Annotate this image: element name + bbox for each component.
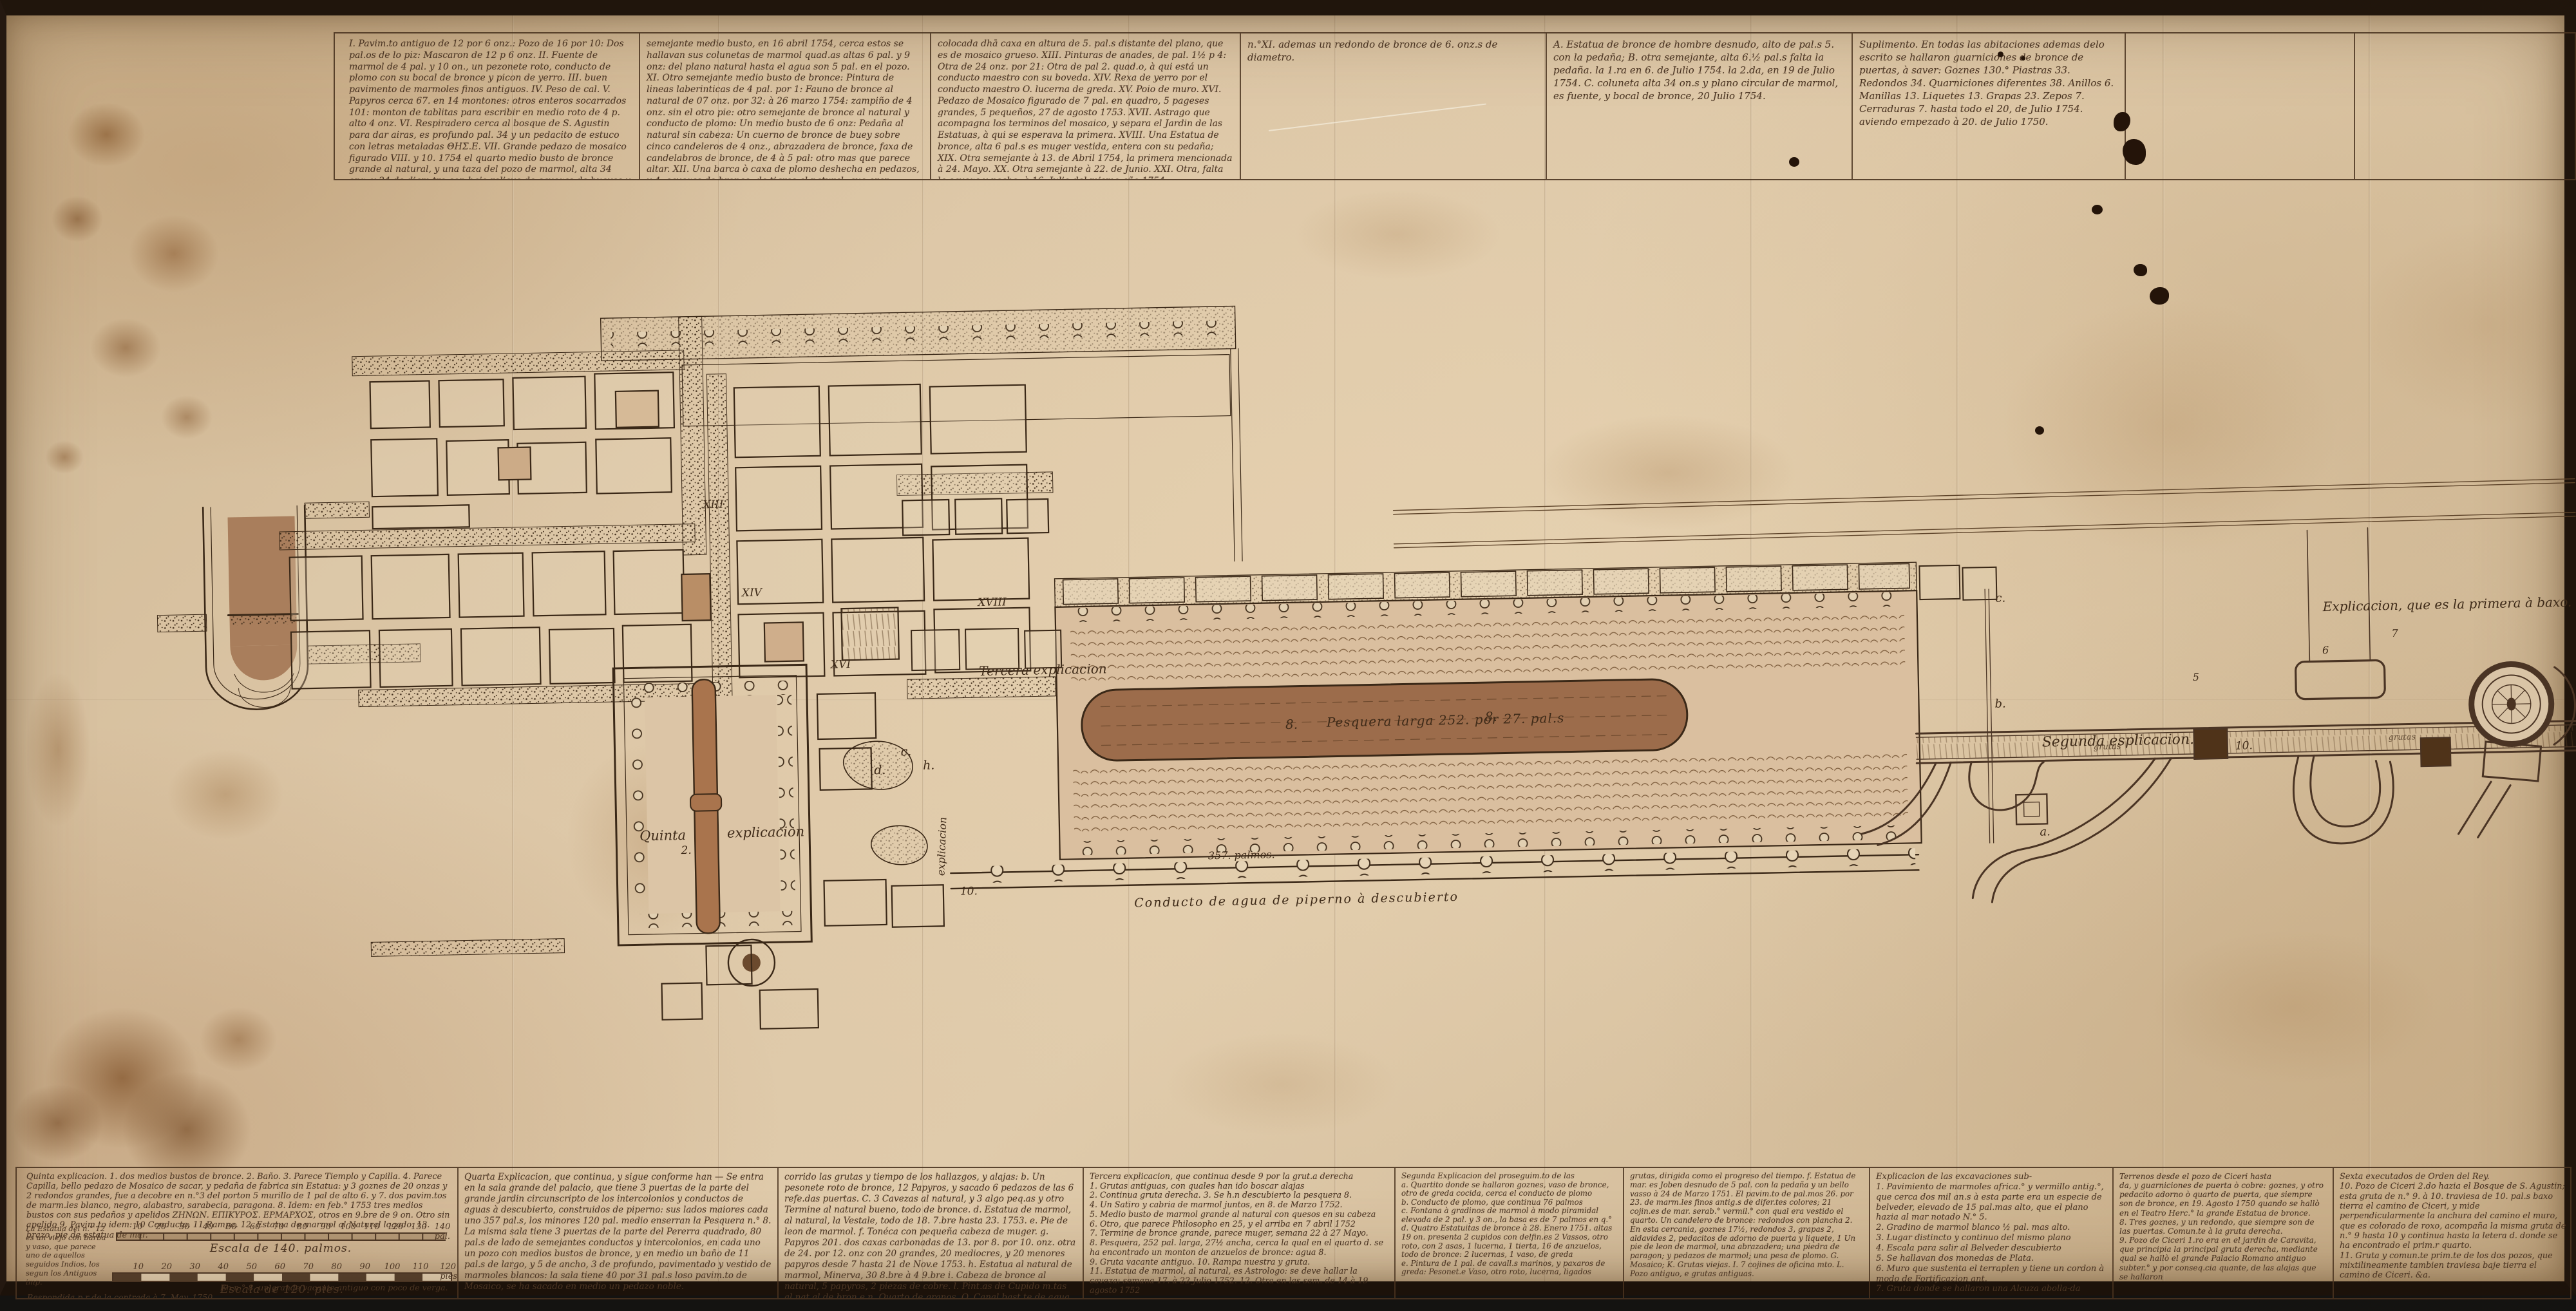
primera-label: Explicacion, que es la primera à baxo. 1…: [2322, 594, 2576, 614]
top-text-column-3: colocada dhā caxa en altura de 5. pal.s …: [931, 33, 1241, 179]
pesquera-num-right: 8.: [1485, 709, 1498, 724]
bottom-column-segunda-2: grutas, dirigida como el progreso del ti…: [1624, 1168, 1870, 1298]
top-text-2: semejante medio busto, en 16 abril 1754,…: [647, 39, 923, 179]
quinta-label-right: explicacion: [727, 824, 805, 840]
letter-a: a.: [2040, 825, 2050, 838]
bottom-column-terrenos: Terrenos desde el pozo de Ciceri hasta d…: [2114, 1168, 2334, 1298]
quinta-label-left: Quinta: [639, 827, 686, 844]
top-text-abc: A. Estatua de bronce de hombre desnudo, …: [1553, 39, 1845, 103]
quinta-footer-2: En n.° 8. un grande vacante antiguo con …: [220, 1283, 448, 1292]
vertical-explicacion: explicacion: [934, 816, 949, 876]
bottom-column-quarta-2: corrido las grutas y tiempo de los halla…: [779, 1168, 1084, 1298]
top-text-3: colocada dhā caxa en altura de 5. pal.s …: [938, 39, 1233, 179]
label-10: 10.: [960, 885, 978, 898]
segunda-text-1: Segunda Explicacion del proseguim.to de …: [1401, 1172, 1617, 1277]
conducto-label: Conducto de agua de piperno à descubiert…: [1134, 890, 1459, 910]
numeral-xviii: XVIII: [976, 596, 1007, 609]
scale-palmos-label: Escala de 140. palmos.: [116, 1242, 446, 1255]
top-text-column-suplimento: Suplimento. En todas las abitaciones ade…: [1853, 33, 2126, 179]
scale-palmos-bar: [116, 1232, 446, 1241]
numeral-5: 5: [2193, 671, 2200, 683]
numeral-xiii: XIII: [701, 498, 724, 512]
bottom-column-segunda-1: Segunda Explicacion del proseguim.to de …: [1396, 1168, 1624, 1298]
top-text-1: I. Pavim.to antiguo de 12 por 6 onz.: Po…: [349, 39, 632, 179]
top-text-column-nxi: n.°XI. ademas un redondo de bronce de 6.…: [1241, 33, 1547, 179]
quarta-text-2: corrido las grutas y tiempo de los halla…: [784, 1172, 1077, 1298]
palmos-357-label: 357. palmos.: [1208, 848, 1275, 862]
numeral-xiv: XIV: [741, 587, 763, 600]
bottom-column-sexta: Sexta executados de Orden del Rey. 10. P…: [2334, 1168, 2573, 1298]
label-10-well: 10.: [2235, 739, 2253, 753]
scale-bar-palmos: 102030405060708090100110120130140 pal. E…: [116, 1222, 446, 1255]
top-text-column-abc: A. Estatua de bronce de hombre desnudo, …: [1547, 33, 1853, 179]
top-text-nxi: n.°XI. ademas un redondo de bronce de 6.…: [1247, 39, 1539, 64]
top-text-column-1: I. Pavim.to antiguo de 12 por 6 onz.: Po…: [343, 33, 640, 179]
letter-d: d.: [874, 763, 886, 777]
segunda-text-2: grutas, dirigida como el progreso del ti…: [1630, 1172, 1863, 1279]
bottom-column-quarta-1: Quarta Explicacion, que continua, y sigu…: [459, 1168, 779, 1298]
letter-b: b.: [1994, 697, 2006, 711]
bottom-column-excavaciones: Explicacion de las excavaciones sub- 1. …: [1870, 1168, 2114, 1298]
letter-h: h.: [923, 758, 935, 772]
manuscript-sheet: XIII XIV XVI XVIII c. d. h. 10. explicac…: [0, 0, 2576, 1296]
scale-pies-ticks: 102030405060708090100110120 pies: [112, 1262, 452, 1272]
top-annotation-panel: I. Pavim.to antiguo de 12 por 6 onz.: Po…: [334, 32, 2576, 180]
excavaciones-text: Explicacion de las excavaciones sub- 1. …: [1876, 1172, 2107, 1294]
letter-c2: c.: [1995, 592, 2005, 605]
top-text-suplimento: Suplimento. En todas las abitaciones ade…: [1859, 39, 2118, 129]
bottom-column-quinta: Quinta explicacion. 1. dos medios bustos…: [21, 1168, 459, 1298]
quarta-text-1: Quarta Explicacion, que continua, y sigu…: [464, 1172, 772, 1292]
grutas-word-2: grutas: [2389, 732, 2416, 742]
numeral-7: 7: [2391, 627, 2398, 639]
terrenos-text: Terrenos desde el pozo de Ciceri hasta d…: [2119, 1172, 2327, 1281]
tercera-label: Tercera explicacion: [979, 661, 1107, 679]
tercera-text: Tercera explicacion, que continua desde …: [1090, 1172, 1388, 1296]
grutas-word: grutas: [2094, 742, 2121, 752]
letter-c: c.: [900, 744, 911, 759]
top-empty-cell-1: [2126, 33, 2355, 179]
bottom-annotation-panel: Quinta explicacion. 1. dos medios bustos…: [15, 1167, 2571, 1299]
quinta-label-num: 2.: [680, 844, 692, 857]
scale-pies-bar: [112, 1272, 452, 1282]
top-empty-cell-2: [2355, 33, 2576, 179]
sexta-text: Sexta executados de Orden del Rey. 10. P…: [2340, 1172, 2567, 1281]
numeral-6: 6: [2322, 644, 2329, 656]
numeral-xvi: XVI: [829, 658, 851, 672]
top-text-column-2: semejante medio busto, en 16 abril 1754,…: [640, 33, 931, 179]
bottom-column-tercera: Tercera explicacion, que continua desde …: [1084, 1168, 1396, 1298]
scale-palmos-ticks: 102030405060708090100110120130140 pal.: [116, 1222, 446, 1232]
plan-drawing: XIII XIV XVI XVIII c. d. h. 10. explicac…: [6, 15, 2576, 1311]
pesquera-num-left: 8.: [1285, 717, 1298, 732]
quinta-side-note: La Estatua del n.° 12 es un viejo con ba…: [26, 1225, 108, 1287]
